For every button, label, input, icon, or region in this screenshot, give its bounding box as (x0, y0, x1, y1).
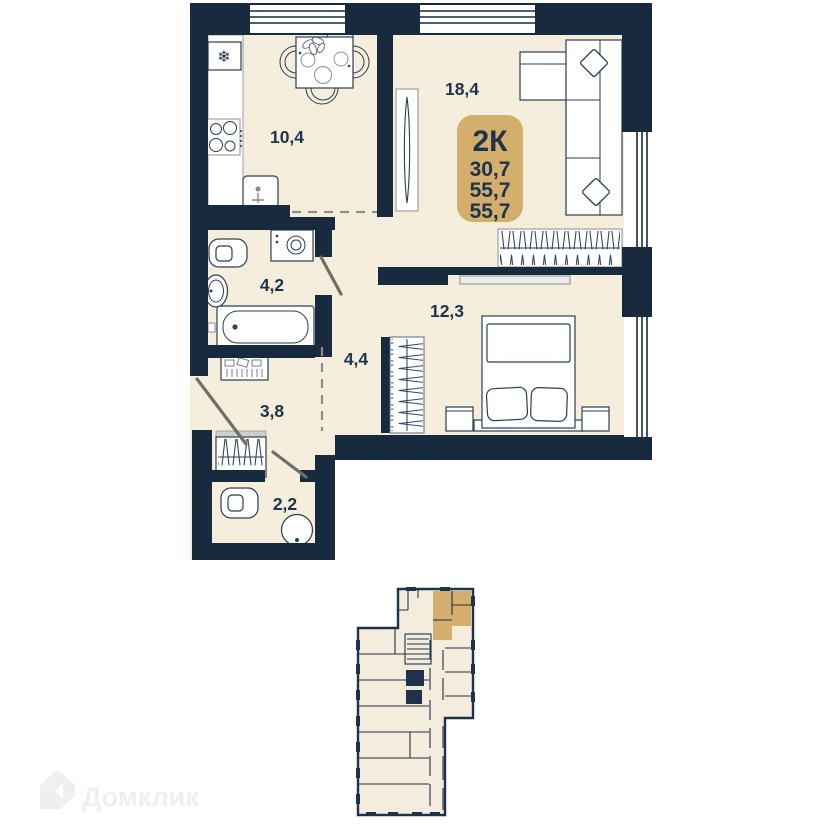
bed (474, 316, 583, 431)
bathtub (208, 306, 314, 348)
room-label-bathroom: 4,2 (260, 275, 285, 295)
unit-area-1: 30,7 (470, 158, 511, 181)
bedroom-wardrobe (381, 337, 424, 433)
room-label-bedroom: 12,3 (430, 301, 464, 321)
minimap-elevator (406, 690, 422, 704)
unit-area-2: 55,7 (470, 179, 511, 202)
toilet-bathroom (209, 239, 247, 267)
unit-area-3: 55,7 (470, 200, 511, 223)
window-bedroom (624, 317, 652, 437)
unit-type-label: 2К (473, 125, 509, 158)
brand-watermark: Домклик (40, 771, 199, 812)
stove (207, 119, 242, 155)
window-living-right (624, 132, 652, 247)
shoe-rack (221, 356, 268, 380)
floorplan-image: ❄ (0, 0, 834, 834)
freezer-icon: ❄ (217, 49, 230, 66)
room-label-living: 18,4 (445, 79, 479, 99)
toilet-wc (221, 488, 258, 518)
floor-plan-svg: ❄ (0, 0, 834, 834)
nightstand-left (446, 407, 473, 431)
kitchen-sink (243, 176, 278, 208)
nightstand-right (582, 407, 609, 431)
bed-pillow (486, 387, 528, 421)
window-living-top (420, 5, 535, 33)
minimap-stairs (405, 634, 431, 664)
unit-badge: 2К 30,7 55,7 55,7 (457, 115, 523, 223)
room-label-wc: 2,2 (273, 494, 298, 514)
washing-machine (271, 230, 313, 261)
fridge: ❄ (208, 42, 241, 70)
clothes-rack-living (498, 229, 622, 267)
room-label-corridor: 4,4 (344, 349, 369, 369)
tv-stand (396, 89, 418, 211)
wc-sink (282, 515, 313, 546)
minimap-elevator (406, 670, 424, 686)
tv-icon (404, 97, 409, 203)
window-kitchen (250, 5, 345, 33)
building-minimap (356, 587, 475, 816)
bed-pillow (530, 387, 567, 421)
room-label-hall: 3,8 (260, 401, 285, 421)
room-label-kitchen: 10,4 (270, 127, 304, 147)
domclick-wordmark: Домклик (82, 782, 199, 812)
sliding-door (460, 276, 570, 284)
